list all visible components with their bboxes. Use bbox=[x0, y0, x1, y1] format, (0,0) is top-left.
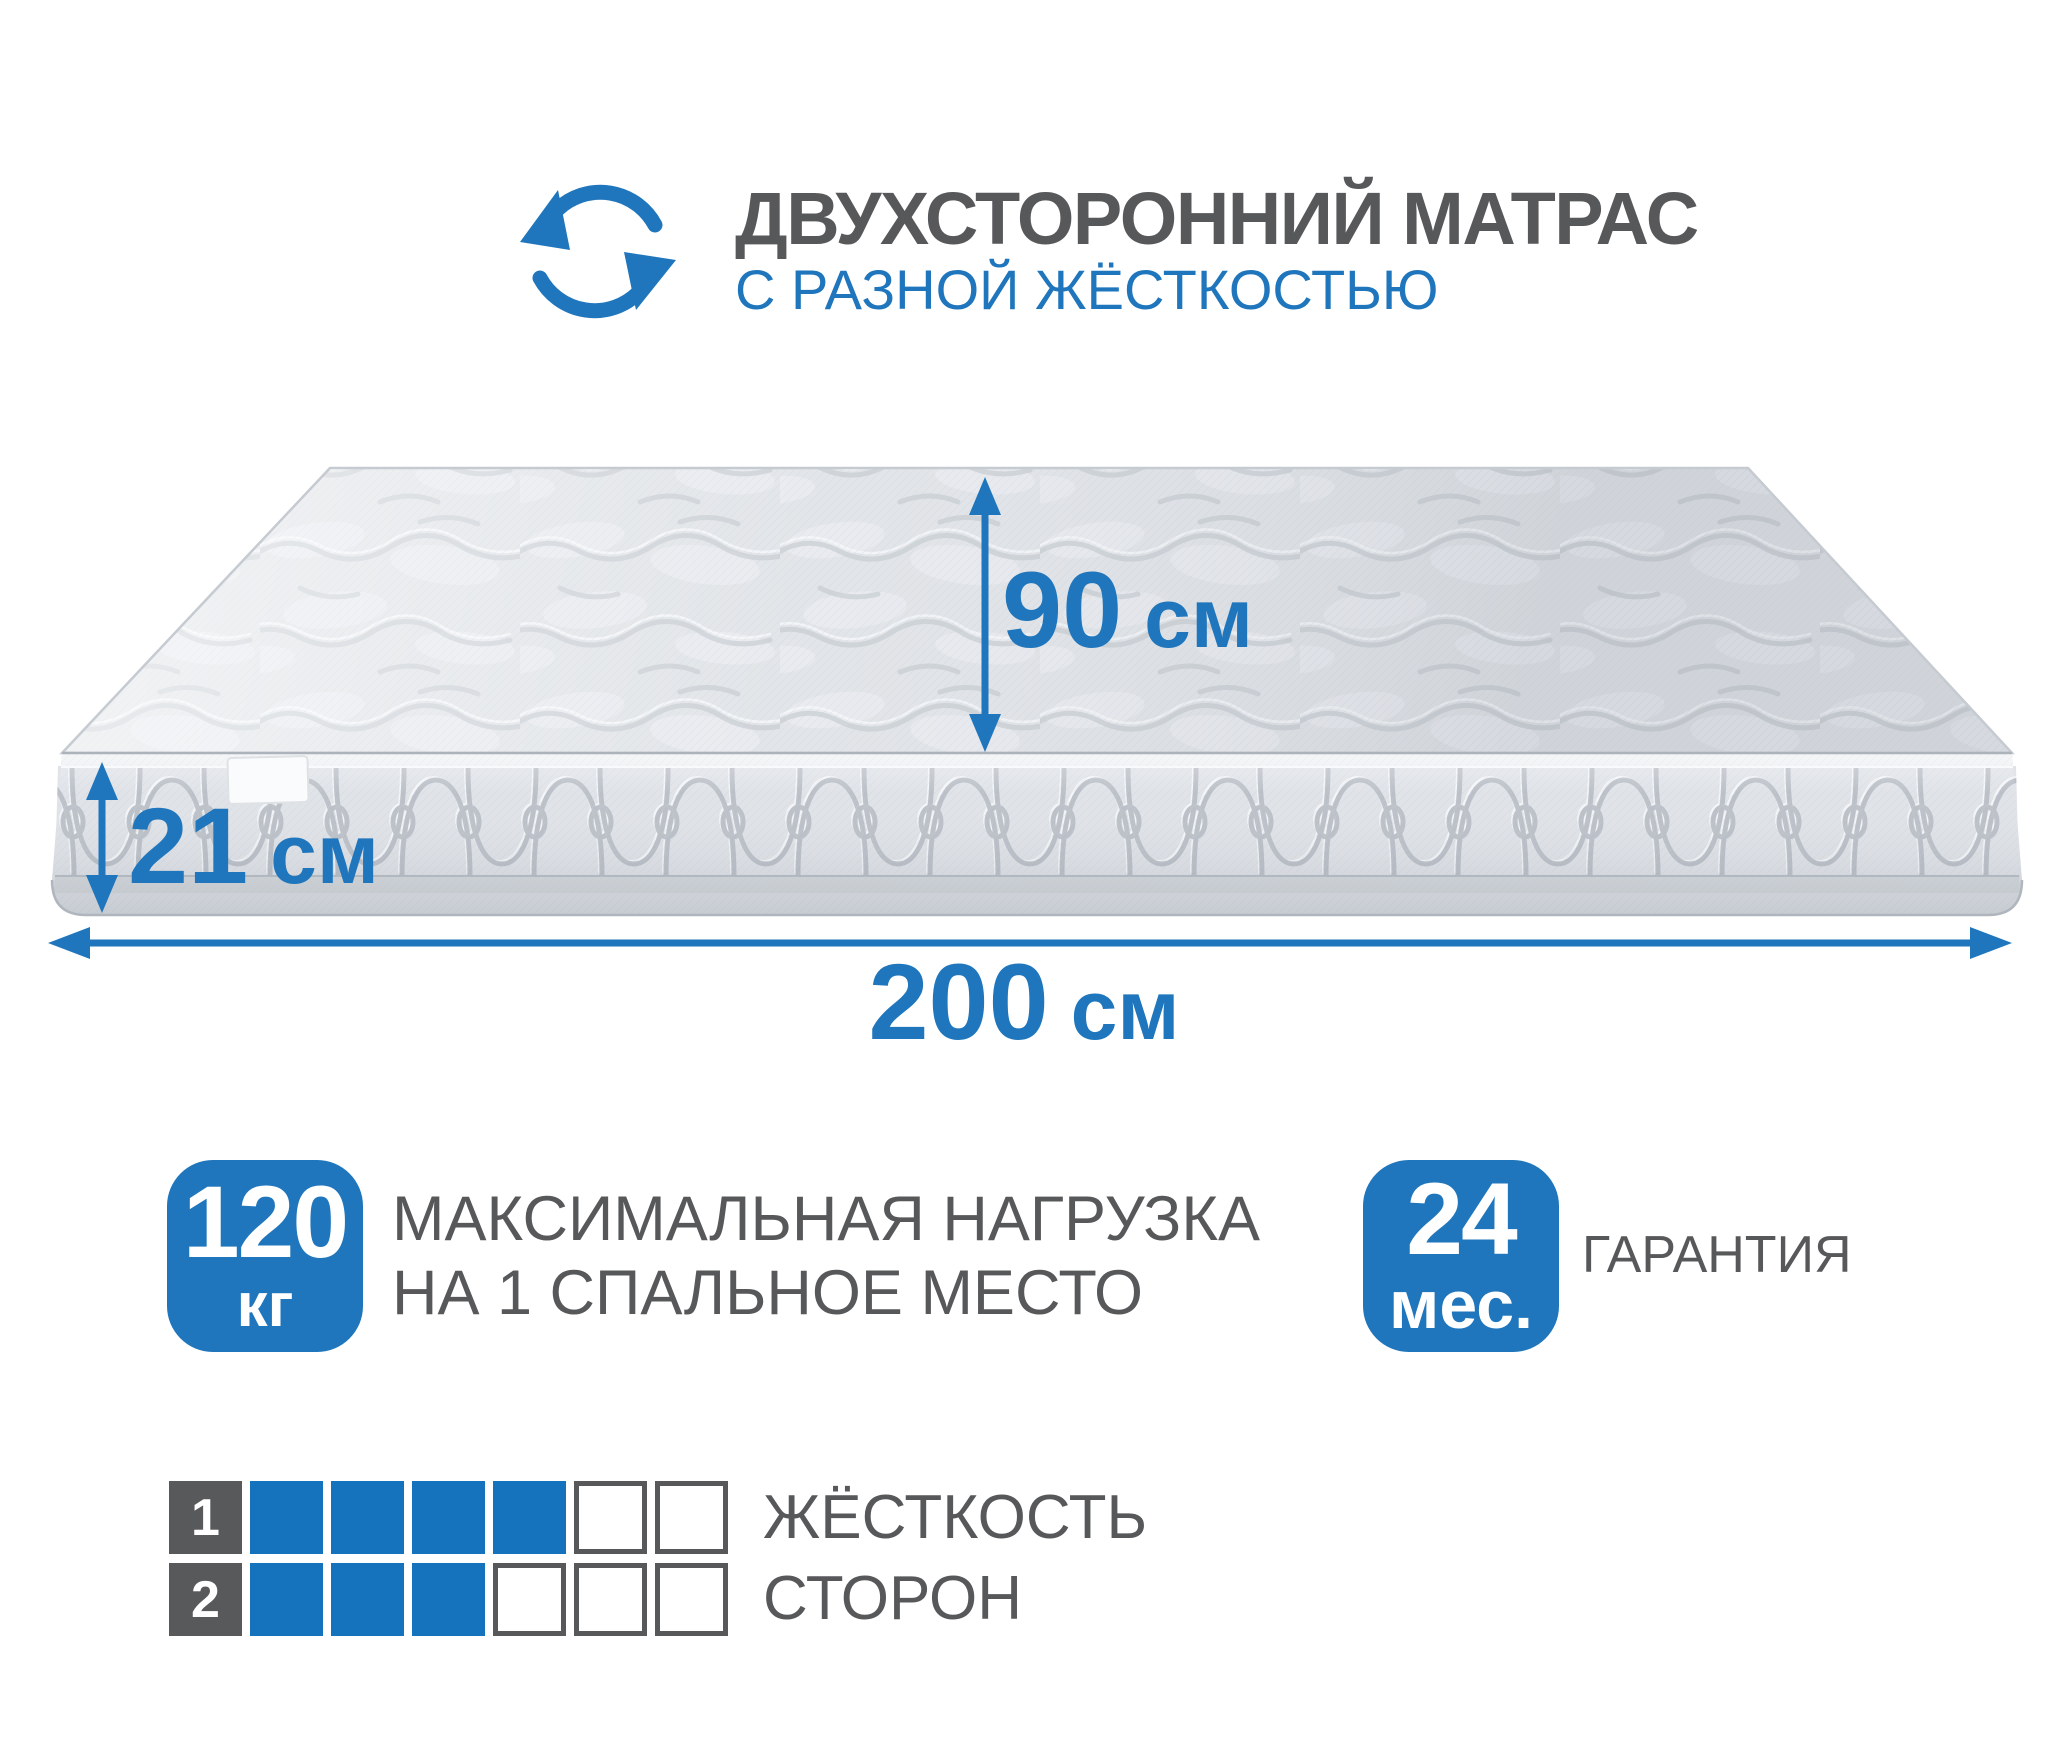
firmness-side-1-cell-2-filled bbox=[331, 1481, 404, 1554]
height-unit: см bbox=[270, 807, 379, 901]
firmness-side-2-cell-3-filled bbox=[412, 1563, 485, 1636]
warranty-badge: 24 мес. bbox=[1363, 1160, 1559, 1352]
firmness-side-2-cell-4-empty bbox=[493, 1563, 566, 1636]
length-unit: см bbox=[1071, 963, 1180, 1057]
warranty-description: ГАРАНТИЯ bbox=[1582, 1160, 1852, 1352]
firmness-side-1-cell-3-filled bbox=[412, 1481, 485, 1554]
firmness-label-line1: ЖЁСТКОСТЬ bbox=[763, 1487, 1147, 1549]
max-load-description-line1: МАКСИМАЛЬНАЯ НАГРУЗКА bbox=[392, 1182, 1260, 1256]
firmness-side-1-cell-1-filled bbox=[250, 1481, 323, 1554]
firmness-side-1-label: 1 bbox=[169, 1481, 242, 1554]
max-load-badge: 120 кг bbox=[167, 1160, 363, 1352]
width-unit: см bbox=[1144, 571, 1253, 665]
firmness-side-2-label: 2 bbox=[169, 1563, 242, 1636]
dimension-width-label: 90см bbox=[1002, 556, 1253, 664]
firmness-side-1-cell-6-empty bbox=[655, 1481, 728, 1554]
dimension-length-label: 200см bbox=[512, 948, 1536, 1056]
firmness-side-2-cell-5-empty bbox=[574, 1563, 647, 1636]
max-load-description: МАКСИМАЛЬНАЯ НАГРУЗКА НА 1 СПАЛЬНОЕ МЕСТ… bbox=[392, 1166, 1260, 1346]
firmness-side-2-cell-2-filled bbox=[331, 1563, 404, 1636]
firmness-side-2-cell-6-empty bbox=[655, 1563, 728, 1636]
height-value: 21 bbox=[128, 785, 248, 906]
firmness-grid: 12 bbox=[169, 1481, 728, 1636]
firmness-side-1-cell-4-filled bbox=[493, 1481, 566, 1554]
infographic-canvas: ДВУХСТОРОННИЙ МАТРАС С РАЗНОЙ ЖЁСТКОСТЬЮ bbox=[0, 0, 2048, 1757]
firmness-side-2-cell-1-filled bbox=[250, 1563, 323, 1636]
max-load-description-line2: НА 1 СПАЛЬНОЕ МЕСТО bbox=[392, 1256, 1260, 1330]
firmness-label-line2: СТОРОН bbox=[763, 1568, 1022, 1630]
max-load-unit: кг bbox=[237, 1273, 294, 1338]
firmness-side-1-cell-5-empty bbox=[574, 1481, 647, 1554]
warranty-description-line: ГАРАНТИЯ bbox=[1582, 1225, 1852, 1286]
warranty-value: 24 bbox=[1406, 1171, 1515, 1268]
max-load-value: 120 bbox=[183, 1174, 347, 1271]
warranty-unit: мес. bbox=[1389, 1270, 1533, 1341]
dimension-height-label: 21см bbox=[128, 792, 379, 900]
width-value: 90 bbox=[1002, 549, 1122, 670]
length-value: 200 bbox=[868, 941, 1048, 1062]
